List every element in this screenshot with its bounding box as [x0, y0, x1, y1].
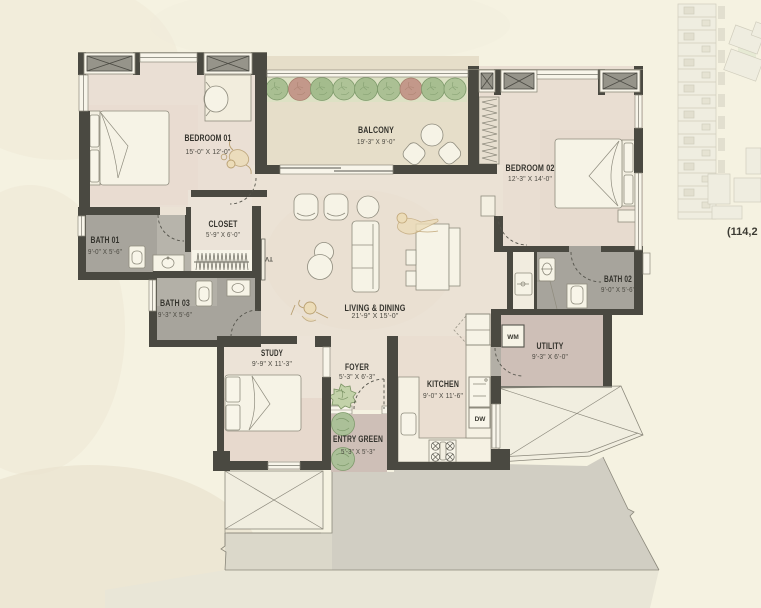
svg-text:BEDROOM 01: BEDROOM 01 — [185, 133, 232, 144]
svg-text:ENTRY GREEN: ENTRY GREEN — [333, 434, 383, 445]
svg-text:19'-3" X 9'-0": 19'-3" X 9'-0" — [357, 137, 395, 146]
svg-text:STUDY: STUDY — [261, 348, 283, 359]
svg-text:UTILITY: UTILITY — [537, 341, 564, 352]
svg-text:5'-9" X 6'-0": 5'-9" X 6'-0" — [206, 230, 240, 239]
svg-text:15'-0" X 12'-0": 15'-0" X 12'-0" — [186, 147, 231, 156]
svg-text:9'-0" X 5'-6": 9'-0" X 5'-6" — [601, 285, 635, 294]
svg-text:CLOSET: CLOSET — [209, 219, 238, 230]
svg-text:9'-9" X 11'-3": 9'-9" X 11'-3" — [252, 359, 292, 368]
svg-text:5'-3" X 6'-3": 5'-3" X 6'-3" — [339, 372, 375, 381]
svg-text:21'-9" X 15'-0": 21'-9" X 15'-0" — [352, 311, 399, 320]
svg-text:9'-3" X 5'-6": 9'-3" X 5'-6" — [158, 310, 192, 319]
svg-text:5'-3" X 5'-3": 5'-3" X 5'-3" — [341, 447, 375, 456]
svg-text:BATH 01: BATH 01 — [91, 235, 120, 246]
svg-text:TV: TV — [265, 255, 273, 261]
svg-text:9'-3" X 6'-0": 9'-3" X 6'-0" — [532, 352, 568, 361]
svg-text:BEDROOM 02: BEDROOM 02 — [506, 163, 555, 174]
svg-text:(114,2: (114,2 — [727, 226, 758, 238]
svg-text:9'-0" X 5'-6": 9'-0" X 5'-6" — [88, 247, 122, 256]
svg-text:12'-3" X 14'-0": 12'-3" X 14'-0" — [508, 174, 552, 183]
svg-text:KITCHEN: KITCHEN — [427, 379, 459, 390]
svg-text:DW: DW — [475, 416, 487, 423]
svg-text:9'-0" X 11'-6": 9'-0" X 11'-6" — [423, 391, 463, 400]
svg-text:WM: WM — [507, 334, 519, 341]
svg-text:BALCONY: BALCONY — [358, 125, 394, 136]
svg-text:BATH 03: BATH 03 — [160, 298, 190, 309]
svg-text:BATH 02: BATH 02 — [604, 274, 632, 285]
